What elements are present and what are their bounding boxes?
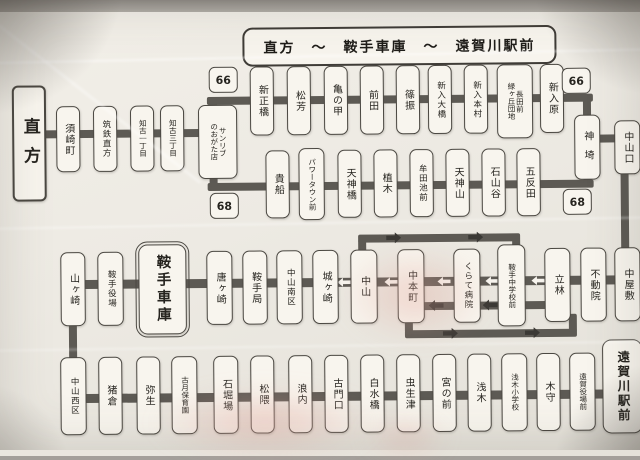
station-box: 牟田池前 (409, 149, 434, 217)
station-box: 植木 (373, 149, 398, 217)
station-box: 新正橋 (250, 66, 275, 135)
route-line-east-vertical (621, 169, 630, 249)
badge-route-68-east: 68 (563, 189, 592, 215)
station-box: 浅木 (467, 354, 492, 432)
map-title: 直方 〜 鞍手車庫 〜 遠賀川駅前 (242, 25, 556, 67)
station-box: 石堀場 (213, 356, 239, 434)
badge-route-66-west: 66 (209, 67, 238, 93)
route-diagram: 直方 〜 鞍手車庫 〜 遠賀川駅前 直方 鞍手車庫 遠賀川駅前 66 68 66… (0, 0, 640, 453)
station-box: 知古三丁目 (160, 105, 185, 171)
badge-route-68-west: 68 (210, 193, 239, 219)
station-box: 城ヶ崎 (312, 250, 339, 324)
station-box: サンリブ のおがた店 (198, 105, 238, 179)
station-box: 須崎町 (56, 106, 81, 172)
station-box: 五反田 (516, 148, 541, 216)
station-box: 石山谷 (481, 148, 506, 216)
station-box: 松隈 (250, 355, 275, 433)
station-box: 唐ヶ崎 (206, 251, 233, 325)
terminal-kurate-depot: 鞍手車庫 (138, 244, 187, 334)
station-box: 松芳 (287, 66, 312, 135)
station-box: 中本町 (397, 249, 425, 323)
station-box: 亀の甲 (324, 66, 349, 135)
station-nakayamaguchi: 中山口 (614, 120, 640, 174)
station-box: 木守 (536, 353, 561, 431)
badge-route-66-east: 66 (562, 68, 591, 94)
station-kanzaki: 神埼 (574, 115, 601, 180)
route-line-west-vertical (69, 322, 77, 360)
station-box: 筑鉄直方 (93, 106, 118, 172)
station-box: パワータウン前 (298, 148, 325, 220)
route-line-bypass-bottom (405, 329, 577, 339)
station-box: 遠賀役場前 (569, 353, 596, 431)
station-box: 白水橋 (360, 354, 385, 432)
station-box: 古月保育園 (171, 356, 198, 434)
station-box: 貴船 (265, 150, 290, 218)
station-box: 山ヶ崎 (60, 252, 86, 326)
station-box: 鞍手役場 (97, 252, 124, 326)
station-box: 中山西区 (60, 357, 87, 435)
station-box: 浅木小学校 (501, 353, 528, 431)
station-box: 新入大橋 (428, 65, 453, 134)
station-box: 天神山 (445, 149, 470, 217)
station-box: 宮の前 (432, 354, 457, 432)
station-box: 篠振 (396, 65, 421, 134)
station-box: 猪倉 (98, 357, 123, 435)
station-box: 長田前 緑ヶ丘団地 (497, 64, 534, 138)
route-line-bypass-top (358, 233, 520, 242)
station-box: 新入本村 (464, 65, 489, 134)
station-box: 知古一丁目 (130, 105, 155, 171)
photo-edge (0, 0, 640, 12)
station-box: くらて病院 (453, 249, 481, 323)
station-box: 天神橋 (337, 150, 362, 218)
station-box: 中屋敷 (614, 247, 640, 321)
station-box: 鞍手局 (242, 250, 268, 324)
terminal-ongagawa-station: 遠賀川駅前 (602, 339, 640, 433)
station-box: 立林 (544, 248, 571, 322)
station-box: 中山 (350, 250, 378, 324)
station-box: 前田 (360, 65, 385, 134)
bus-route-map-photo: { "map": { "title": "直方 〜 鞍手車庫 〜 遠賀川駅前",… (0, 0, 640, 450)
station-box: 虫生津 (396, 354, 421, 432)
station-box: 弥生 (136, 356, 161, 434)
station-box: 浪内 (288, 355, 313, 433)
terminal-nogata: 直方 (12, 85, 47, 201)
station-box: 中山南区 (276, 250, 303, 324)
station-box: 古門口 (324, 355, 349, 433)
station-box: 不動院 (580, 248, 607, 322)
station-box: 新入原 (540, 64, 565, 133)
station-box: 鞍手中学校前 (497, 244, 526, 326)
